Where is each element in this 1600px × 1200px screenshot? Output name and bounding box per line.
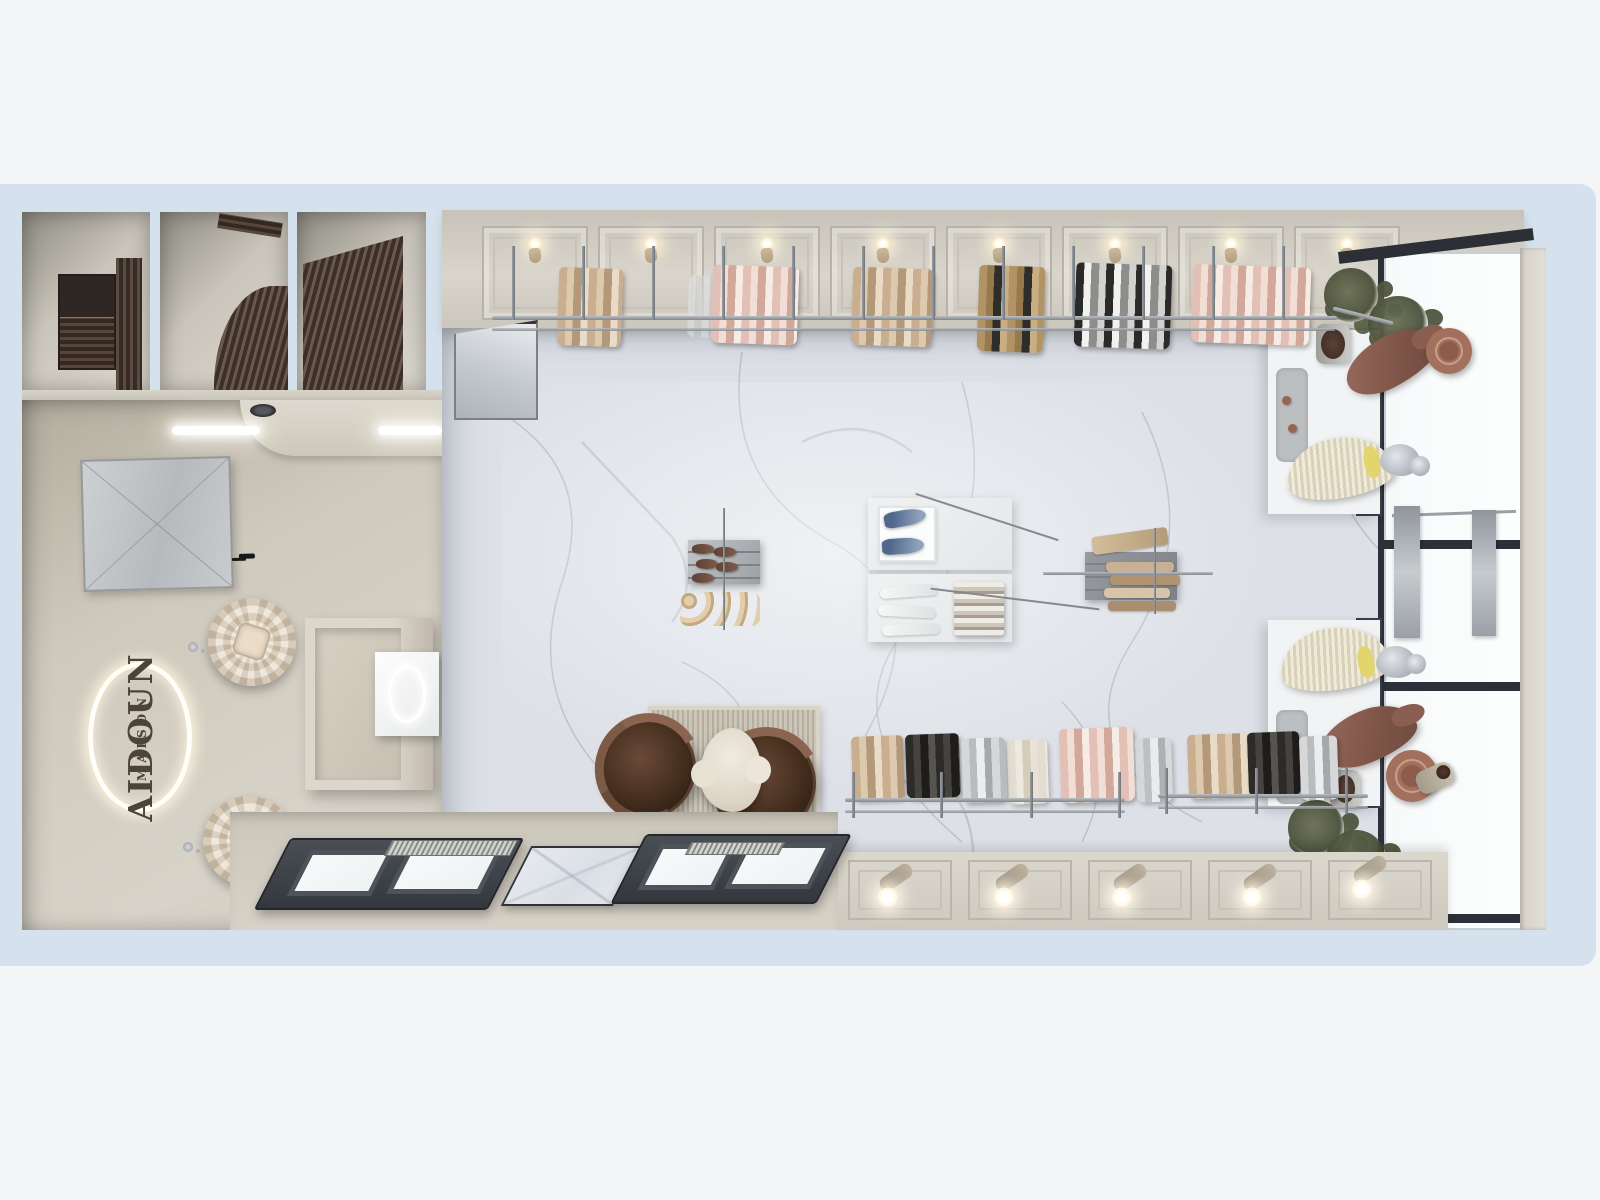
rail-post	[1255, 768, 1258, 814]
display-rail	[1043, 572, 1213, 575]
rail-drop-rod	[792, 246, 795, 320]
garment-cluster	[961, 737, 1007, 802]
sconce-light	[527, 236, 543, 252]
rail-drop-rod	[1282, 246, 1285, 320]
rail-post	[1118, 772, 1121, 818]
exterior-wall-column	[1520, 248, 1546, 930]
led-strip-light	[172, 426, 260, 435]
folded-garment	[1110, 575, 1180, 585]
wall-mirror-panel	[80, 456, 233, 592]
rail-drop-rod	[1002, 246, 1005, 320]
garment-cluster	[1299, 735, 1339, 800]
mannequin-head	[1406, 654, 1426, 674]
hanging-rail	[845, 810, 1125, 813]
desk-logo-ring	[388, 665, 426, 723]
wood-panel	[116, 258, 142, 392]
hanging-rail	[1158, 794, 1368, 798]
leather-armchair	[600, 718, 696, 818]
rail-drop-rod	[1142, 246, 1145, 320]
garment-cluster	[1007, 739, 1049, 804]
folded-garment	[1106, 562, 1174, 572]
garment-cluster	[977, 265, 1046, 353]
sconce-light	[1107, 236, 1123, 252]
hanging-rail	[492, 328, 1335, 331]
wide-brim-hat	[1426, 328, 1472, 374]
rail-post	[1345, 768, 1348, 814]
rail-drop-rod	[1212, 246, 1215, 320]
sculpture-pin	[183, 842, 193, 852]
sconce-light	[643, 236, 659, 252]
sconce-light	[875, 236, 891, 252]
south-wall-panels	[836, 852, 1448, 930]
rail-drop-rod	[512, 246, 515, 320]
leaning-mirror	[454, 320, 538, 420]
sandal-group	[680, 592, 760, 626]
hanging-rail	[1158, 806, 1368, 809]
platform-mat	[1276, 368, 1308, 462]
hanging-rail	[492, 316, 1337, 320]
brown-shoe	[696, 559, 718, 569]
rail-post	[940, 772, 943, 818]
ribbed-doormat	[685, 842, 786, 855]
window-frame-bar	[1384, 682, 1530, 691]
rail-drop-rod	[722, 246, 725, 320]
white-garment	[880, 584, 939, 599]
garment-cluster	[1074, 262, 1173, 349]
garment-cluster	[851, 735, 905, 801]
wood-slats	[60, 318, 114, 368]
display-post	[1154, 528, 1156, 614]
rail-drop-rod	[1072, 246, 1075, 320]
sconce-light	[759, 236, 775, 252]
sconce-light	[1223, 236, 1239, 252]
brand-subname: MAISON	[136, 693, 148, 781]
brown-shoe	[692, 544, 714, 554]
garment-cluster	[557, 267, 624, 347]
garment-cluster	[1191, 264, 1312, 346]
garment-cluster	[905, 733, 961, 799]
garment-cluster	[1059, 727, 1136, 804]
display-shoe	[1288, 424, 1297, 433]
mirror-handle	[239, 553, 255, 558]
folded-stack	[954, 582, 1004, 636]
rail-drop-rod	[582, 246, 585, 320]
illuminated-logo-ring: AIDOUN MAISON	[88, 662, 192, 812]
glass-pane	[287, 850, 394, 896]
brown-shoe	[716, 562, 738, 572]
display-table-garments	[868, 574, 1012, 642]
stand-pole	[723, 508, 725, 630]
wood-ledge	[217, 213, 283, 238]
hanging-rail	[845, 798, 1125, 802]
rail-drop-rod	[932, 246, 935, 320]
rail-post	[852, 772, 855, 818]
organic-coffee-table	[700, 728, 762, 812]
brown-shoe	[714, 547, 736, 557]
white-garment	[878, 604, 936, 618]
sculpture-pin	[188, 642, 198, 652]
brown-shoe	[692, 573, 714, 583]
curved-wood-panel	[214, 286, 288, 392]
fitting-room-2	[160, 212, 288, 392]
folded-garment	[1104, 588, 1170, 598]
rail-drop-rod	[652, 246, 655, 320]
desk-side-panel	[375, 652, 439, 736]
store-top-view-render: AIDOUN MAISON	[0, 0, 1600, 1200]
curtain-panel	[1472, 510, 1496, 636]
curtain-panel	[1394, 506, 1420, 638]
rail-post	[1165, 768, 1168, 814]
garment-cluster	[1187, 733, 1251, 799]
mannequin-head	[1410, 456, 1430, 476]
wood-feature-wall	[303, 236, 403, 392]
rail-post	[1030, 772, 1033, 818]
rail-drop-rod	[862, 246, 865, 320]
cash-desk	[305, 618, 433, 790]
led-strip-light	[378, 426, 442, 435]
display-shoe	[1282, 396, 1291, 405]
fitting-room-1	[22, 212, 150, 392]
display-table-shoes	[868, 498, 1012, 570]
brand-logo: AIDOUN MAISON	[70, 690, 210, 784]
folded-garment	[1108, 601, 1176, 611]
flower-sculpture	[208, 598, 296, 686]
white-garment	[882, 623, 940, 636]
ceiling-fixture	[250, 404, 276, 417]
wall-art-panel	[58, 274, 116, 370]
ribbed-doormat	[384, 840, 518, 856]
fitting-room-3	[297, 212, 426, 392]
